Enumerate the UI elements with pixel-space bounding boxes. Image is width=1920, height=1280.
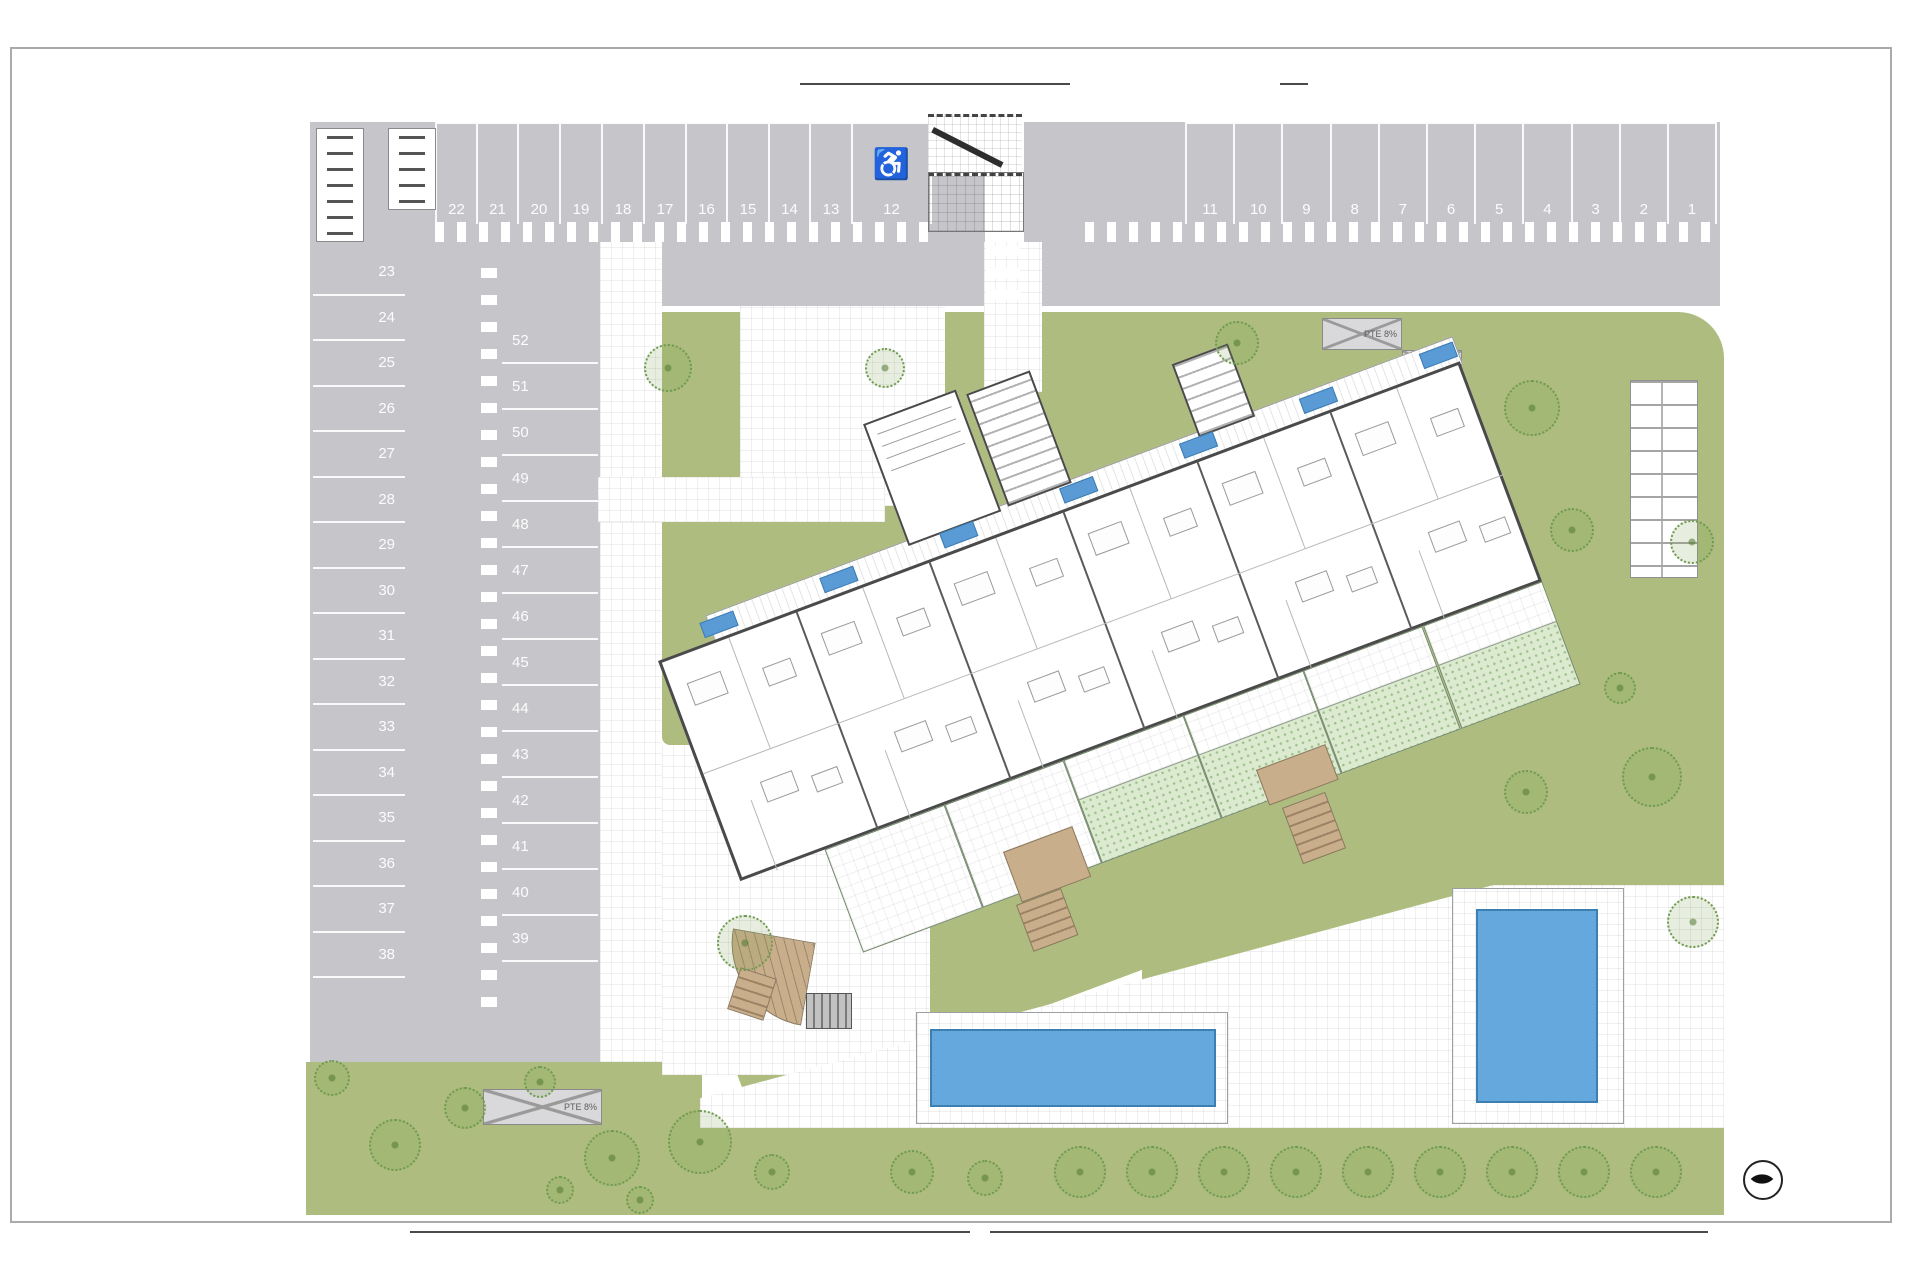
north-compass-icon xyxy=(1743,1160,1783,1200)
furniture-symbol xyxy=(820,621,862,656)
partition-line xyxy=(1263,438,1305,549)
bike-rack-bar xyxy=(399,168,425,171)
parking-stall: 34 xyxy=(313,751,405,797)
stall-number: 19 xyxy=(561,201,601,218)
tree-icon xyxy=(546,1176,574,1204)
furniture-symbol xyxy=(1161,620,1201,653)
bike-rack xyxy=(388,128,436,210)
furniture-symbol xyxy=(1027,670,1067,703)
bike-rack xyxy=(316,128,364,242)
stall-number: 42 xyxy=(512,792,529,809)
stall-divider-dashes xyxy=(481,268,497,1012)
parking-stall: 51 xyxy=(502,364,598,410)
tree-icon xyxy=(865,348,905,388)
parking-stall: 11 xyxy=(1187,124,1235,224)
furniture-symbol xyxy=(954,571,996,606)
stall-number: 40 xyxy=(512,884,529,901)
stall-number: 2 xyxy=(1621,201,1667,218)
parking-stall: 33 xyxy=(313,705,405,751)
stall-number: 44 xyxy=(512,700,529,717)
stall-number: 22 xyxy=(437,201,476,218)
stall-number: 24 xyxy=(378,309,395,326)
tree-icon xyxy=(1126,1146,1178,1198)
tree-icon xyxy=(1270,1146,1322,1198)
parking-stall: 4 xyxy=(1524,124,1572,224)
tree-icon xyxy=(1504,770,1548,814)
tree-icon xyxy=(1630,1146,1682,1198)
parking-stall: ♿12 xyxy=(853,124,932,224)
parking-stall: 28 xyxy=(313,478,405,524)
parking-column-left: 23242526272829303132333435363738 xyxy=(313,250,405,978)
stall-number: 15 xyxy=(728,201,768,218)
tree-icon xyxy=(1504,380,1560,436)
parking-stall: 9 xyxy=(1283,124,1331,224)
furniture-symbol xyxy=(811,766,844,793)
ramp-label: PTE 8% xyxy=(564,1102,597,1112)
tree-icon xyxy=(1670,520,1714,564)
parking-stall: 31 xyxy=(313,614,405,660)
stall-number: 37 xyxy=(378,900,395,917)
parking-stall: 40 xyxy=(502,870,598,916)
furniture-symbol xyxy=(1479,516,1512,543)
tree-icon xyxy=(1550,508,1594,552)
stall-number: 45 xyxy=(512,654,529,671)
furniture-symbol xyxy=(1297,458,1332,487)
bike-rack-bar xyxy=(327,168,353,171)
stall-number: 29 xyxy=(378,536,395,553)
parking-stall: 50 xyxy=(502,410,598,456)
stall-number: 32 xyxy=(378,673,395,690)
parking-stall: 14 xyxy=(770,124,811,224)
parking-stall: 29 xyxy=(313,523,405,569)
road-edge-marking xyxy=(435,222,930,242)
parking-stall: 42 xyxy=(502,778,598,824)
stall-number: 26 xyxy=(378,400,395,417)
stall-number: 3 xyxy=(1573,201,1619,218)
stall-number: 9 xyxy=(1283,201,1329,218)
boundary-line xyxy=(410,1231,970,1233)
parking-stall: 37 xyxy=(313,887,405,933)
parking-stall: 13 xyxy=(811,124,853,224)
crosswalk xyxy=(986,246,1020,304)
stall-number: 46 xyxy=(512,608,529,625)
tree-icon xyxy=(890,1150,934,1194)
stall-number: 43 xyxy=(512,746,529,763)
stall-number: 50 xyxy=(512,424,529,441)
parking-stall: 7 xyxy=(1380,124,1428,224)
furniture-symbol xyxy=(1212,616,1245,643)
tree-icon xyxy=(967,1160,1003,1196)
stall-number: 39 xyxy=(512,930,529,947)
stall-number: 13 xyxy=(811,201,851,218)
parking-stall: 22 xyxy=(437,124,478,224)
stall-number: 14 xyxy=(770,201,809,218)
furniture-symbol xyxy=(1345,566,1378,593)
tree-icon xyxy=(524,1066,556,1098)
parking-stall: 30 xyxy=(313,569,405,615)
furniture-symbol xyxy=(1163,508,1198,537)
furniture-symbol xyxy=(762,658,797,687)
furniture-symbol xyxy=(1428,520,1468,553)
parking-stall: 32 xyxy=(313,660,405,706)
partition-line xyxy=(996,538,1038,649)
parking-stall: 15 xyxy=(728,124,770,224)
tree-icon xyxy=(1667,896,1719,948)
bike-rack-bar xyxy=(327,216,353,219)
boundary-line xyxy=(1280,83,1308,85)
parking-column-middle: 5251504948474645444342414039 xyxy=(502,318,598,962)
footpath xyxy=(598,477,885,522)
parking-stall: 2 xyxy=(1621,124,1669,224)
furniture-symbol xyxy=(896,608,931,637)
parking-stall: 44 xyxy=(502,686,598,732)
stall-number: 5 xyxy=(1476,201,1522,218)
parking-stall: 41 xyxy=(502,824,598,870)
bike-rack-bar xyxy=(327,200,353,203)
barrier-arm-icon xyxy=(931,127,1003,168)
tree-icon xyxy=(369,1119,421,1171)
bike-rack-bar xyxy=(399,136,425,139)
tree-icon xyxy=(754,1154,790,1190)
tree-icon xyxy=(584,1130,640,1186)
furniture-symbol xyxy=(1221,471,1263,506)
parking-stall: 45 xyxy=(502,640,598,686)
parking-stall: 5 xyxy=(1476,124,1524,224)
partition-line xyxy=(884,750,911,821)
stall-number: 20 xyxy=(519,201,559,218)
boundary-line xyxy=(800,83,1070,85)
parking-stall: 36 xyxy=(313,842,405,888)
partition-line xyxy=(728,638,770,749)
partition-line xyxy=(1152,650,1179,721)
parking-stall: 27 xyxy=(313,432,405,478)
stall-number: 31 xyxy=(378,627,395,644)
parking-stall: 46 xyxy=(502,594,598,640)
site-plan-sheet: 22212019181716151413♿12 1110987654321 23… xyxy=(0,0,1920,1280)
tree-icon xyxy=(1342,1146,1394,1198)
stall-number: 6 xyxy=(1428,201,1474,218)
stall-number: 36 xyxy=(378,855,395,872)
stall-number: 21 xyxy=(478,201,517,218)
tree-icon xyxy=(1486,1146,1538,1198)
stall-number: 17 xyxy=(645,201,685,218)
parking-row-top-left: 22212019181716151413♿12 xyxy=(435,122,932,224)
tree-icon xyxy=(717,915,773,971)
furniture-symbol xyxy=(1088,521,1130,556)
parking-stall: 3 xyxy=(1573,124,1621,224)
stall-number: 35 xyxy=(378,809,395,826)
parking-stall: 19 xyxy=(561,124,603,224)
parking-stall: 10 xyxy=(1235,124,1283,224)
stall-number: 34 xyxy=(378,764,395,781)
compass-needle-icon xyxy=(1751,1168,1774,1191)
stall-number: 1 xyxy=(1669,201,1715,218)
partition-line xyxy=(1018,700,1045,771)
stall-number: 23 xyxy=(378,263,395,280)
stall-number: 27 xyxy=(378,445,395,462)
tree-icon xyxy=(1198,1146,1250,1198)
stall-number: 47 xyxy=(512,562,529,579)
tree-icon xyxy=(1215,321,1259,365)
bike-rack-bar xyxy=(327,232,353,235)
parking-stall: 47 xyxy=(502,548,598,594)
parking-stall: 6 xyxy=(1428,124,1476,224)
tree-icon xyxy=(644,344,692,392)
entrance-gate xyxy=(928,114,1022,176)
tree-icon xyxy=(1604,672,1636,704)
parking-stall: 43 xyxy=(502,732,598,778)
furniture-symbol xyxy=(760,770,800,803)
partition-line xyxy=(1129,488,1171,599)
tree-icon xyxy=(668,1110,732,1174)
parking-stall: 35 xyxy=(313,796,405,842)
bike-rack-bar xyxy=(327,152,353,155)
parking-stall: 39 xyxy=(502,916,598,962)
accessible-parking-icon: ♿ xyxy=(853,150,930,180)
stall-number: 4 xyxy=(1524,201,1570,218)
parking-stall: 48 xyxy=(502,502,598,548)
boundary-line xyxy=(990,1231,1708,1233)
stall-number: 33 xyxy=(378,718,395,735)
tree-icon xyxy=(1558,1146,1610,1198)
stall-number: 11 xyxy=(1187,201,1233,218)
stall-number: 8 xyxy=(1332,201,1378,218)
stall-number: 52 xyxy=(512,332,529,349)
parking-stall: 24 xyxy=(313,296,405,342)
parking-stall: 26 xyxy=(313,387,405,433)
partition-line xyxy=(751,800,778,871)
furniture-symbol xyxy=(893,720,933,753)
furniture-symbol xyxy=(1430,408,1465,437)
partition-line xyxy=(862,588,904,699)
stall-number: 12 xyxy=(853,201,930,218)
parking-stall: 49 xyxy=(502,456,598,502)
stall-number: 16 xyxy=(687,201,726,218)
ramp-label: PTE 8% xyxy=(1364,329,1397,339)
stall-number: 41 xyxy=(512,838,529,855)
parking-stall: 8 xyxy=(1332,124,1380,224)
bike-rack-bar xyxy=(399,152,425,155)
swimming-pool-main xyxy=(930,1029,1216,1107)
furniture-symbol xyxy=(1078,666,1111,693)
furniture-symbol xyxy=(944,716,977,743)
garage-ramp: PTE 8% xyxy=(1322,318,1402,350)
tree-icon xyxy=(1054,1146,1106,1198)
stall-number: 38 xyxy=(378,946,395,963)
tree-icon xyxy=(314,1060,350,1096)
parking-stall: 52 xyxy=(502,318,598,364)
stall-number: 7 xyxy=(1380,201,1426,218)
partition-line xyxy=(1419,550,1446,621)
tree-icon xyxy=(1622,747,1682,807)
tree-icon xyxy=(444,1087,486,1129)
parking-row-top-right: 1110987654321 xyxy=(1185,122,1717,224)
bike-rack-bar xyxy=(399,184,425,187)
stall-number: 10 xyxy=(1235,201,1281,218)
stall-number: 49 xyxy=(512,470,529,487)
stairs xyxy=(806,993,852,1029)
tree-icon xyxy=(626,1186,654,1214)
partition-line xyxy=(1285,600,1312,671)
parking-stall: 38 xyxy=(313,933,405,979)
bike-rack-bar xyxy=(327,136,353,139)
stall-number: 18 xyxy=(603,201,643,218)
furniture-symbol xyxy=(1029,558,1064,587)
bike-rack-bar xyxy=(327,184,353,187)
stall-number: 28 xyxy=(378,491,395,508)
bike-rack-bar xyxy=(399,200,425,203)
parking-stall: 25 xyxy=(313,341,405,387)
stall-number: 48 xyxy=(512,516,529,533)
stall-number: 30 xyxy=(378,582,395,599)
parking-stall: 23 xyxy=(313,250,405,296)
stall-number: 25 xyxy=(378,354,395,371)
parking-stall: 17 xyxy=(645,124,687,224)
parking-stall: 1 xyxy=(1669,124,1717,224)
road-edge-marking xyxy=(1085,222,1715,242)
entrance-gate-apron xyxy=(928,172,1024,232)
stall-number: 51 xyxy=(512,378,529,395)
partition-line xyxy=(1397,388,1439,499)
tree-icon xyxy=(1414,1146,1466,1198)
swimming-pool-secondary xyxy=(1476,909,1598,1103)
furniture-symbol xyxy=(687,671,729,706)
parking-stall: 16 xyxy=(687,124,728,224)
parking-stall: 21 xyxy=(478,124,519,224)
furniture-symbol xyxy=(1355,421,1397,456)
parking-stall: 18 xyxy=(603,124,645,224)
furniture-symbol xyxy=(1294,570,1334,603)
parking-stall: 20 xyxy=(519,124,561,224)
